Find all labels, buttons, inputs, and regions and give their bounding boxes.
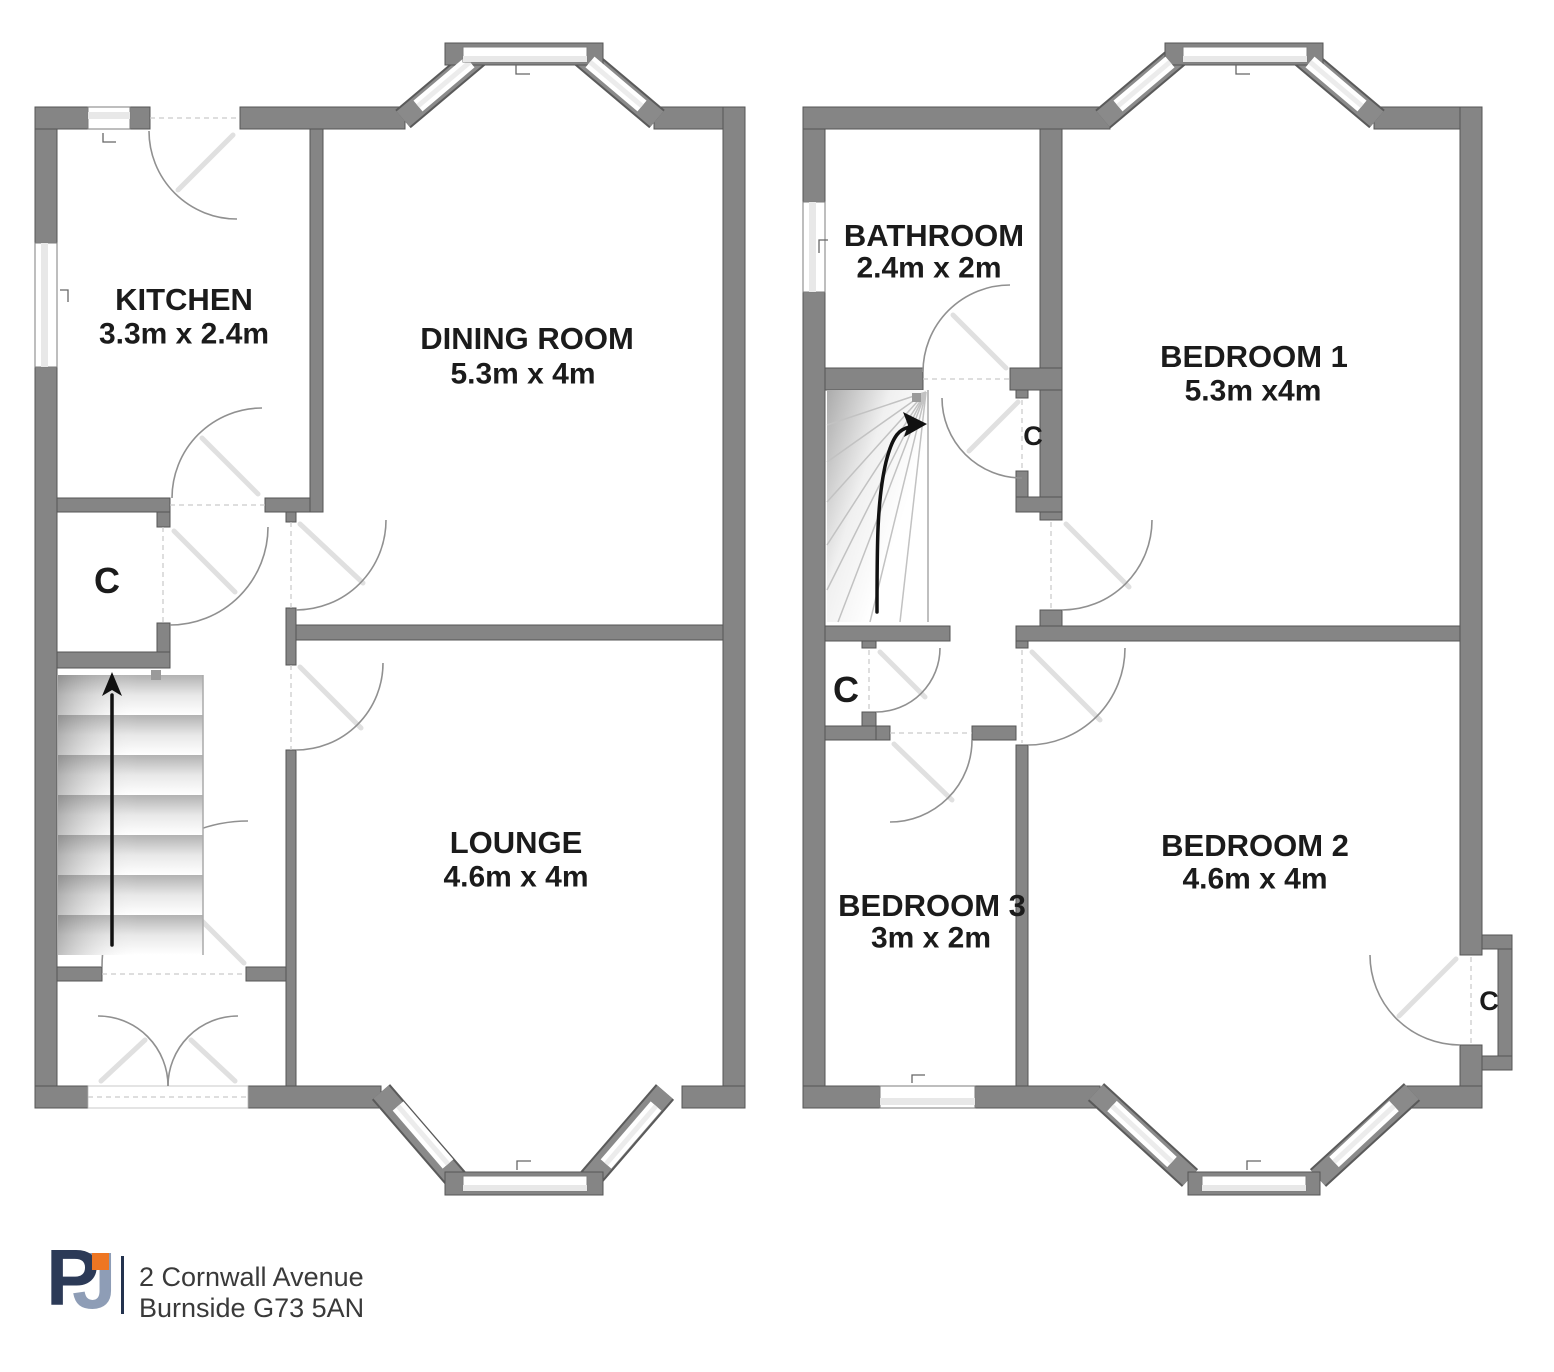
room-label-bedroom-1: BEDROOM 1 bbox=[1160, 340, 1348, 374]
room-dims-lounge: 4.6m x 4m bbox=[443, 861, 588, 894]
agency-logo: J P bbox=[46, 1238, 141, 1326]
room-dims-bathroom: 2.4m x 2m bbox=[856, 252, 1001, 285]
address-line-2: Burnside G73 5AN bbox=[139, 1293, 364, 1324]
ground-floor-plan bbox=[35, 43, 745, 1195]
ground-floor-stairs bbox=[58, 670, 203, 955]
room-label-dining-room: DINING ROOM bbox=[420, 322, 634, 356]
room-dims-bedroom-1: 5.3m x4m bbox=[1185, 375, 1322, 408]
logo-letter-p: P bbox=[46, 1238, 99, 1318]
logo-orange-square-icon bbox=[92, 1253, 109, 1270]
room-label-kitchen: KITCHEN bbox=[115, 283, 253, 317]
room-dims-kitchen: 3.3m x 2.4m bbox=[99, 318, 269, 351]
ground-floor-walls bbox=[35, 43, 745, 1195]
floorplan-drawing bbox=[0, 0, 1554, 1372]
address-line-1: 2 Cornwall Avenue bbox=[139, 1262, 364, 1293]
room-label-bedroom-2: BEDROOM 2 bbox=[1161, 829, 1349, 863]
floorplan-page: { "floors": { "ground": { "rooms": [ {"i… bbox=[0, 0, 1554, 1372]
room-dims-bedroom-2: 4.6m x 4m bbox=[1182, 863, 1327, 896]
room-dims-bedroom-3: 3m x 2m bbox=[871, 922, 991, 955]
room-label-bathroom: BATHROOM bbox=[844, 219, 1024, 253]
property-address: 2 Cornwall Avenue Burnside G73 5AN bbox=[139, 1262, 364, 1324]
closet-label-under-stairs: C bbox=[833, 670, 859, 710]
room-label-bedroom-3: BEDROOM 3 bbox=[838, 889, 1026, 923]
room-dims-dining-room: 5.3m x 4m bbox=[450, 358, 595, 391]
footer-divider bbox=[121, 1256, 124, 1314]
closet-label-landing: C bbox=[1023, 422, 1043, 452]
room-label-lounge: LOUNGE bbox=[450, 826, 583, 860]
closet-label-ground: C bbox=[94, 561, 120, 601]
first-floor-stairs bbox=[827, 390, 928, 622]
first-floor-plan bbox=[803, 43, 1512, 1195]
ground-floor-windows bbox=[35, 47, 656, 1191]
closet-label-bedroom-2: C bbox=[1479, 987, 1499, 1017]
